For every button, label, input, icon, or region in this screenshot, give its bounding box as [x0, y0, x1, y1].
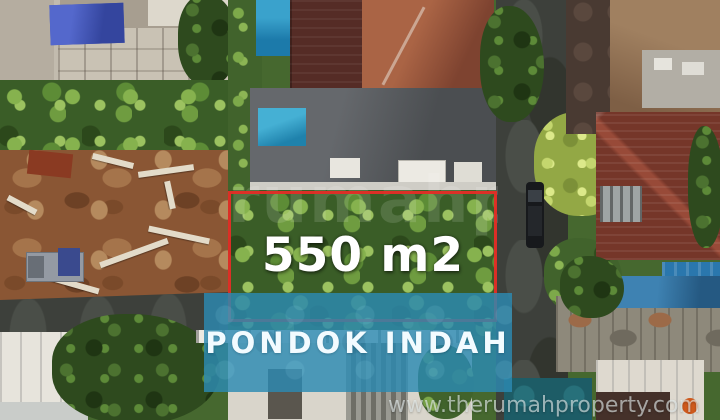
ac-unit [682, 62, 704, 75]
location-banner-text: PONDOK INDAH [205, 326, 510, 360]
location-banner: PONDOK INDAH [204, 293, 512, 392]
car-windshield [528, 190, 542, 202]
truck [26, 240, 86, 290]
skylight [600, 186, 642, 222]
lumber-plank [92, 153, 134, 169]
website-watermark: www.therumahproperty.com [388, 393, 700, 418]
truck-cab [28, 256, 44, 278]
ac-unit [654, 58, 672, 70]
lumber-plank [164, 181, 176, 210]
lumber-plank [138, 164, 194, 178]
lumber-plank [99, 238, 169, 268]
dirt-lot [0, 150, 232, 314]
blue-crate [58, 248, 80, 276]
parked-car [526, 182, 544, 248]
road-trees-top [480, 6, 544, 122]
car-roof [528, 206, 542, 236]
right-edge-trees [688, 126, 720, 248]
aerial-photo: rumahproperty 550 m2 PONDOK INDAH www.th… [0, 0, 720, 420]
maroon-roof-house [290, 0, 364, 92]
area-label: 550 m2 [224, 228, 502, 283]
shanty-trees [560, 256, 624, 318]
terracotta-roof-house [362, 0, 494, 92]
swimming-pool-mid [258, 108, 306, 146]
rusty-container [27, 150, 73, 178]
blue-tarp [49, 3, 124, 46]
lumber-plank [6, 195, 37, 215]
blue-tarp-right [616, 276, 720, 308]
